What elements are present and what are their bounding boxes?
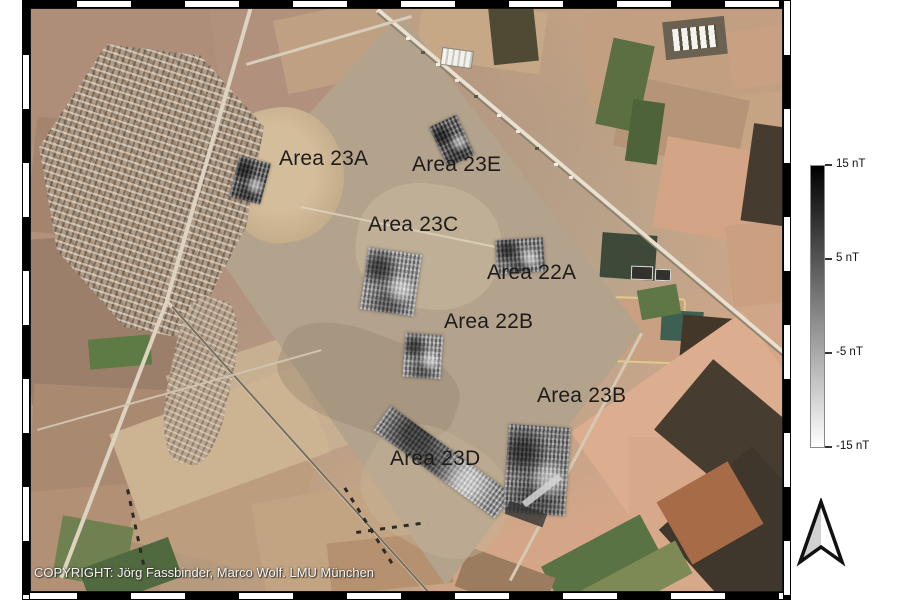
orchard-patch [488, 8, 539, 65]
colorbar-label-lower: -5 nT [836, 346, 863, 358]
area-label-23e: Area 23E [412, 153, 501, 177]
magnetogram-area-22b [403, 333, 444, 380]
copyright-text: COPYRIGHT: Jörg Fassbinder, Marco Wolf. … [34, 565, 374, 580]
area-label-22b: Area 22B [444, 310, 533, 334]
colorbar-label-max: 15 nT [836, 158, 865, 170]
magnetogram-area-23c [360, 248, 422, 317]
colorbar-tick [825, 352, 832, 354]
building-specks [31, 9, 35, 12]
figure-canvas: Area 23A Area 23E Area 23C Area 22A Area… [0, 0, 900, 600]
satellite-map: Area 23A Area 23E Area 23C Area 22A Area… [30, 8, 783, 592]
neatline-left [22, 0, 30, 600]
farm-building [631, 266, 653, 281]
colorbar-label-min: -15 nT [836, 440, 869, 452]
area-label-22a: Area 22A [487, 261, 576, 285]
neatline-right [783, 0, 791, 600]
colorbar-gradient [810, 165, 825, 448]
north-arrow-icon [794, 498, 848, 572]
area-label-23a: Area 23A [279, 147, 368, 171]
farm-building [672, 25, 718, 51]
terrain-patch [725, 216, 783, 307]
terrain-layer [31, 9, 782, 591]
colorbar-tick [825, 164, 832, 166]
colorbar-tick [825, 258, 832, 260]
area-label-23d: Area 23D [390, 447, 480, 471]
area-label-23c: Area 23C [368, 213, 458, 237]
terrain-patch [725, 22, 783, 90]
neatline-bottom [22, 592, 791, 600]
colorbar-label-upper: 5 nT [836, 252, 859, 264]
orchard-patch [740, 123, 783, 229]
area-label-23b: Area 23B [537, 384, 626, 408]
neatline-top [22, 0, 791, 8]
farm-building [655, 269, 671, 282]
colorbar-tick [825, 446, 832, 448]
